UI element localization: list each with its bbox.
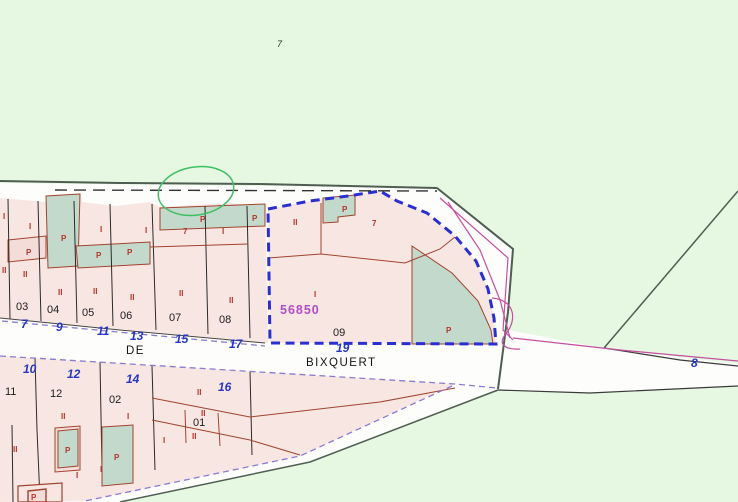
landuse-label: P (114, 453, 120, 462)
street-name-prefix: DE (126, 345, 145, 357)
landuse-label: I (29, 222, 31, 231)
landuse-label: I (76, 471, 78, 480)
landuse-label: I (163, 436, 165, 445)
landuse-label: II (293, 218, 297, 227)
street-name: BIXQUERT (306, 357, 377, 369)
landuse-label: II (61, 412, 65, 421)
landuse-label: P (127, 248, 133, 257)
landuse-label: P (61, 234, 67, 243)
parcel-id-label: 01 (193, 417, 205, 429)
street-number-label: 10 (23, 362, 37, 376)
landuse-label: II (93, 287, 97, 296)
street-number-label: 11 (97, 324, 110, 338)
landuse-label: II (13, 445, 17, 454)
parcel-id-label: 08 (219, 314, 231, 326)
landuse-label: P (96, 251, 102, 260)
street-number-label: 14 (126, 372, 140, 386)
landuse-label: 7 (372, 219, 377, 228)
parcel-id-label: 05 (82, 307, 94, 319)
parcel-id-label: 04 (47, 304, 59, 316)
street-number-label: 15 (175, 332, 189, 346)
teal-parcel[interactable] (160, 204, 265, 230)
selected-parcel-block-label: 09 (333, 327, 345, 339)
landuse-label: P (200, 215, 206, 224)
cadastral-map: 7 DE BIXQUERT 56850 09 79111315171910121… (0, 0, 738, 502)
landuse-label: II (23, 270, 27, 279)
landuse-label: II (130, 293, 134, 302)
cadastral-map-viewport: 7 DE BIXQUERT 56850 09 79111315171910121… (0, 0, 738, 502)
teal-parcel[interactable] (76, 242, 150, 268)
parcel-id-label: 03 (16, 301, 28, 313)
landuse-label: P (65, 446, 71, 455)
landuse-label: P (26, 248, 32, 257)
landuse-label: I (145, 226, 147, 235)
landuse-label: I (3, 212, 5, 221)
street-number-label: 13 (130, 329, 144, 343)
landuse-label: I (314, 290, 316, 299)
landuse-label: I (127, 412, 129, 421)
street-number-label: 12 (67, 367, 81, 381)
landuse-label: II (201, 409, 205, 418)
selected-parcel-code: 56850 (280, 303, 320, 317)
landuse-label: I (100, 225, 102, 234)
landuse-label: II (179, 289, 183, 298)
parcel-id-label: 11 (5, 386, 16, 398)
landuse-label: 7 (183, 227, 188, 236)
landuse-label: P (31, 493, 37, 502)
street-number-label: 8 (691, 356, 698, 370)
street-number-label: 9 (56, 320, 63, 334)
parcel-id-label: 12 (50, 388, 62, 400)
landuse-label: II (2, 266, 6, 275)
parcel-id-label: 07 (169, 312, 181, 324)
parcel-id-label: 02 (109, 394, 121, 406)
landuse-label: P (252, 214, 258, 223)
landuse-label: II (229, 296, 233, 305)
landuse-label: I (100, 465, 102, 474)
landuse-label: I (222, 227, 224, 236)
landuse-label: II (192, 432, 196, 441)
landuse-label: II (197, 388, 201, 397)
parcel-id-label: 06 (120, 310, 132, 322)
street-number-label: 19 (336, 341, 350, 355)
landuse-label: II (58, 288, 62, 297)
street-number-label: 16 (218, 380, 232, 394)
street-number-label: 17 (229, 337, 244, 351)
landuse-label: P (446, 326, 452, 335)
landuse-label: P (342, 205, 348, 214)
